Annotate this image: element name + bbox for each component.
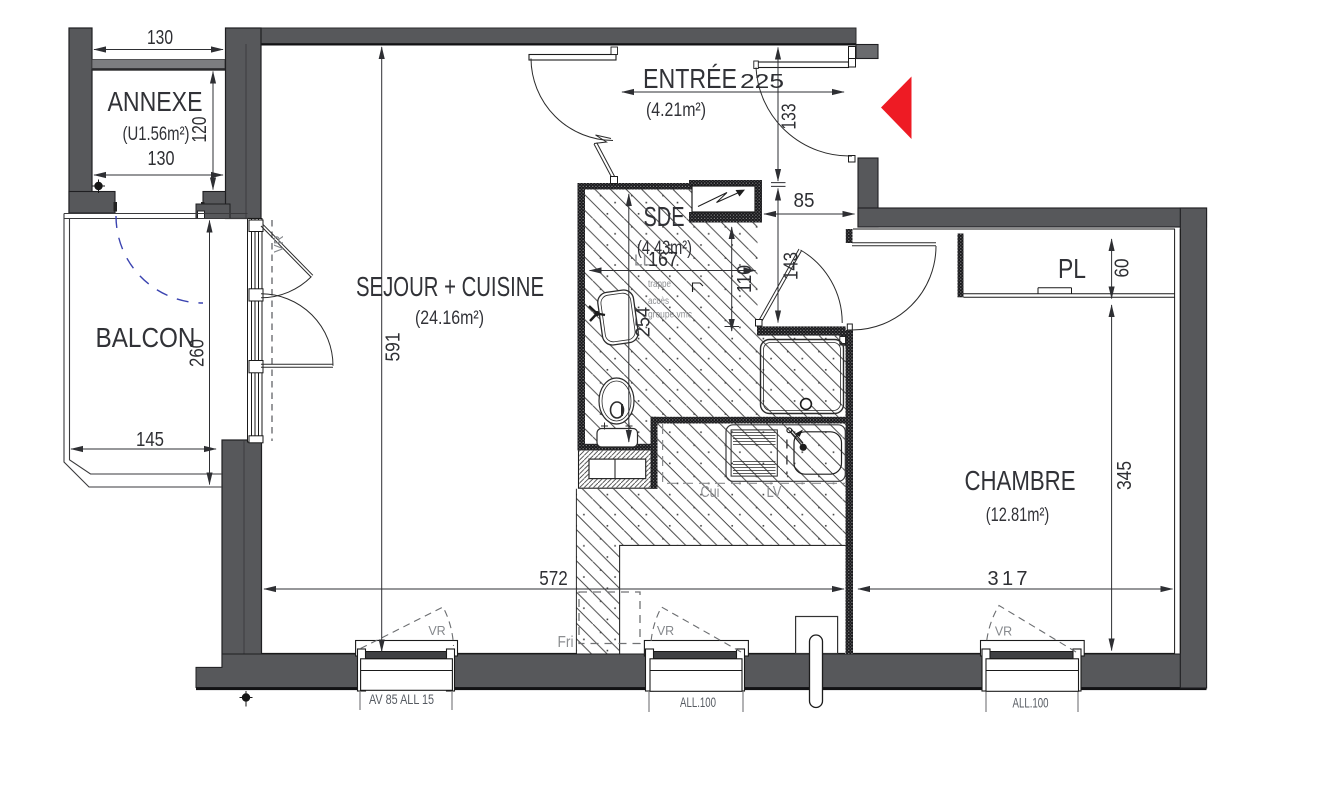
svg-text:VR: VR: [657, 624, 674, 638]
svg-text:CHAMBRE: CHAMBRE: [965, 465, 1076, 496]
svg-text:ENTRÉE: ENTRÉE: [643, 63, 737, 94]
svg-text:groupe vmc: groupe vmc: [648, 310, 692, 321]
svg-text:(4.21m²): (4.21m²): [646, 99, 706, 121]
svg-text:SDE: SDE: [644, 201, 685, 232]
svg-text:260: 260: [187, 339, 209, 367]
svg-text:VR: VR: [995, 625, 1012, 639]
svg-text:BALCON: BALCON: [96, 322, 196, 353]
svg-text:167: 167: [648, 249, 678, 271]
svg-text:ANNEXE: ANNEXE: [108, 86, 203, 117]
svg-text:130: 130: [147, 27, 173, 49]
svg-text:VR: VR: [272, 235, 286, 252]
svg-text:225: 225: [740, 71, 784, 93]
svg-text:145: 145: [136, 429, 164, 451]
svg-text:ALL.100: ALL.100: [1013, 696, 1049, 711]
svg-text:110: 110: [734, 265, 756, 293]
svg-text:accès: accès: [648, 296, 669, 307]
svg-text:120: 120: [189, 117, 211, 143]
svg-text:Fri: Fri: [558, 634, 574, 651]
svg-text:591: 591: [383, 333, 405, 362]
svg-text:130: 130: [148, 148, 175, 170]
svg-text:572: 572: [539, 568, 568, 590]
svg-text:LV: LV: [767, 484, 783, 501]
svg-text:133: 133: [779, 104, 801, 130]
svg-text:(U1.56m²): (U1.56m²): [123, 123, 190, 145]
svg-text:143: 143: [781, 252, 803, 280]
svg-text:317: 317: [988, 568, 1028, 590]
svg-text:VR: VR: [428, 624, 445, 638]
svg-text:SEJOUR + CUISINE: SEJOUR + CUISINE: [356, 271, 544, 302]
svg-text:345: 345: [1114, 461, 1136, 490]
svg-text:ALL.100: ALL.100: [680, 695, 716, 710]
svg-text:AV 85 ALL 15: AV 85 ALL 15: [369, 692, 434, 707]
svg-text:Cui: Cui: [701, 484, 720, 501]
svg-text:trappe: trappe: [648, 279, 671, 290]
svg-text:PL: PL: [1058, 253, 1086, 284]
svg-text:60: 60: [1112, 259, 1134, 278]
svg-text:(24.16m²): (24.16m²): [415, 307, 484, 329]
svg-text:85: 85: [794, 190, 815, 212]
svg-text:(12.81m²): (12.81m²): [986, 504, 1050, 526]
